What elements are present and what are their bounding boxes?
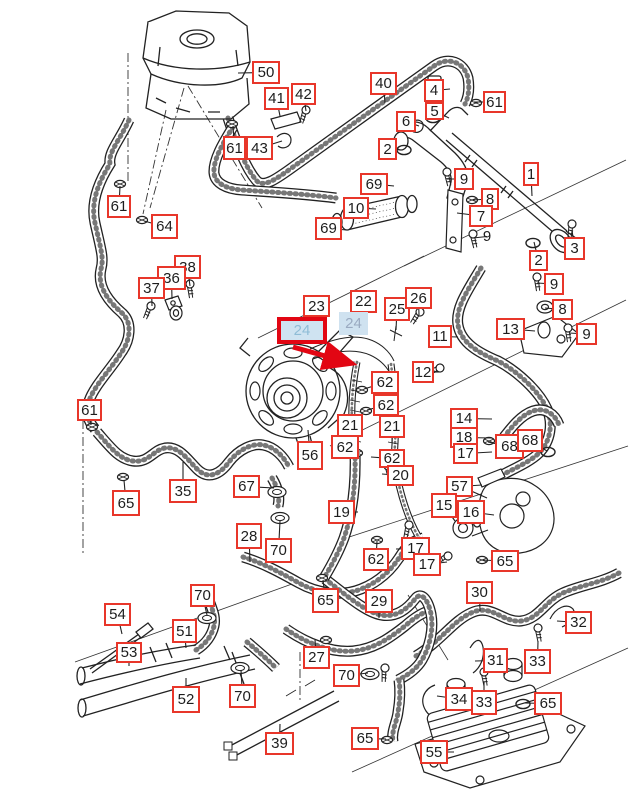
- part-callout-21[interactable]: 21: [379, 415, 405, 438]
- part-callout-15[interactable]: 15: [431, 493, 457, 518]
- part-callout-9[interactable]: 9: [454, 168, 474, 190]
- part-callout-3[interactable]: 3: [564, 237, 585, 260]
- part-callout-70[interactable]: 70: [190, 584, 215, 607]
- part-callout-2[interactable]: 2: [529, 250, 548, 271]
- part-callout-64[interactable]: 64: [151, 214, 178, 239]
- part-callout-70[interactable]: 70: [265, 538, 292, 563]
- part-callout-35[interactable]: 35: [169, 479, 197, 503]
- part-callout-42[interactable]: 42: [291, 83, 316, 105]
- part-callout-65[interactable]: 65: [491, 550, 519, 572]
- part-callout-27[interactable]: 27: [303, 646, 330, 669]
- part-callout-17[interactable]: 17: [413, 553, 441, 576]
- part-callout-62[interactable]: 62: [363, 548, 389, 571]
- part-callout-65[interactable]: 65: [534, 692, 562, 715]
- part-callout-26[interactable]: 26: [405, 287, 432, 309]
- part-callout-61[interactable]: 61: [223, 136, 246, 160]
- part-callout-8[interactable]: 8: [552, 299, 573, 320]
- part-callout-32[interactable]: 32: [565, 611, 592, 634]
- part-callout-2[interactable]: 2: [378, 138, 397, 160]
- part-callout-43[interactable]: 43: [246, 136, 273, 160]
- part-callout-34[interactable]: 34: [445, 687, 473, 711]
- part-callout-65[interactable]: 65: [312, 588, 339, 613]
- part-callout-62[interactable]: 62: [373, 394, 399, 416]
- part-callout-53[interactable]: 53: [116, 642, 142, 663]
- part-callout-61[interactable]: 61: [107, 195, 131, 218]
- part-callout-70[interactable]: 70: [229, 684, 256, 708]
- part-callout-7[interactable]: 7: [469, 205, 493, 227]
- part-callout-5[interactable]: 5: [425, 102, 444, 120]
- part-callout-61[interactable]: 61: [483, 91, 506, 113]
- part-callout-70[interactable]: 70: [333, 664, 360, 687]
- part-callout-40[interactable]: 40: [370, 72, 397, 95]
- part-callout-22[interactable]: 22: [350, 290, 377, 313]
- part-callout-52[interactable]: 52: [172, 686, 200, 713]
- part-callout-9[interactable]: 9: [576, 323, 597, 345]
- part-callout-24[interactable]: 24: [339, 312, 368, 335]
- part-callout-65[interactable]: 65: [351, 727, 379, 750]
- part-callout-1[interactable]: 1: [523, 162, 539, 186]
- part-callout-62[interactable]: 62: [371, 371, 399, 394]
- part-callout-61[interactable]: 61: [77, 399, 102, 421]
- part-callout-16[interactable]: 16: [457, 500, 485, 524]
- part-callout-10[interactable]: 10: [343, 197, 369, 219]
- part-callout-54[interactable]: 54: [104, 603, 131, 626]
- part-callout-20[interactable]: 20: [387, 465, 414, 486]
- part-callout-39[interactable]: 39: [265, 732, 294, 755]
- part-callout-17[interactable]: 17: [453, 443, 478, 464]
- part-callout-9[interactable]: 9: [544, 273, 564, 295]
- part-callout-68[interactable]: 68: [517, 429, 543, 452]
- part-callout-21[interactable]: 21: [337, 414, 363, 437]
- part-callout-33[interactable]: 33: [524, 649, 551, 674]
- part-callout-51[interactable]: 51: [172, 619, 197, 643]
- part-callout-50[interactable]: 50: [252, 61, 280, 84]
- part-callout-23[interactable]: 23: [303, 295, 330, 317]
- part-callout-24-selected[interactable]: 24: [277, 317, 327, 344]
- part-callout-30[interactable]: 30: [466, 581, 493, 604]
- part-callout-28[interactable]: 28: [236, 523, 262, 549]
- part-callout-29[interactable]: 29: [365, 589, 393, 613]
- part-callout-37[interactable]: 37: [138, 277, 165, 299]
- part-callout-19[interactable]: 19: [328, 500, 355, 524]
- part-callout-55[interactable]: 55: [420, 740, 448, 764]
- part-callout-12[interactable]: 12: [412, 361, 434, 383]
- part-callout-69[interactable]: 69: [315, 217, 342, 240]
- part-callout-65[interactable]: 65: [112, 490, 140, 516]
- part-callout-69[interactable]: 69: [360, 173, 388, 195]
- part-callout-6[interactable]: 6: [396, 111, 416, 132]
- part-callout-9[interactable]: 9: [480, 228, 494, 245]
- part-callout-62[interactable]: 62: [331, 435, 359, 459]
- part-callout-41[interactable]: 41: [264, 87, 289, 110]
- part-callout-33[interactable]: 33: [471, 690, 497, 715]
- part-callout-31[interactable]: 31: [483, 648, 508, 673]
- part-callout-56[interactable]: 56: [297, 441, 323, 470]
- part-callout-13[interactable]: 13: [496, 318, 525, 340]
- diagram-canvas: 5041426143616438363761653567564045616216…: [0, 0, 631, 800]
- part-callout-11[interactable]: 11: [428, 325, 452, 348]
- part-callout-14[interactable]: 14: [450, 408, 478, 429]
- part-callout-67[interactable]: 67: [233, 475, 260, 498]
- part-callout-4[interactable]: 4: [424, 79, 444, 102]
